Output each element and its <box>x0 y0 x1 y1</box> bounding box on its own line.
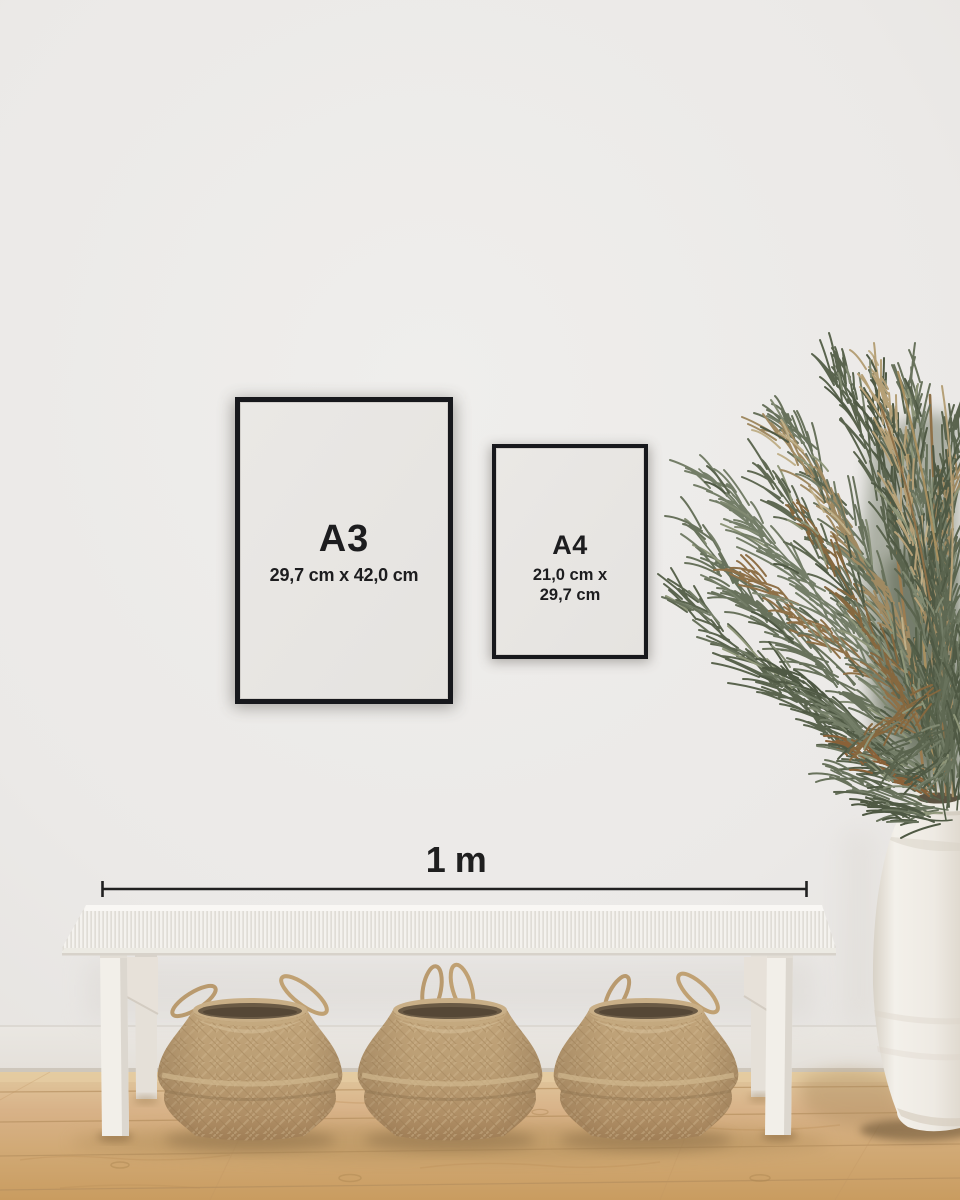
svg-text:A4: A4 <box>552 530 588 560</box>
svg-text:29,7 cm: 29,7 cm <box>540 586 601 604</box>
svg-text:1 m: 1 m <box>426 839 487 880</box>
svg-text:A3: A3 <box>319 518 370 560</box>
svg-text:29,7 cm x 42,0 cm: 29,7 cm x 42,0 cm <box>270 565 419 585</box>
svg-text:21,0 cm x: 21,0 cm x <box>533 566 608 584</box>
